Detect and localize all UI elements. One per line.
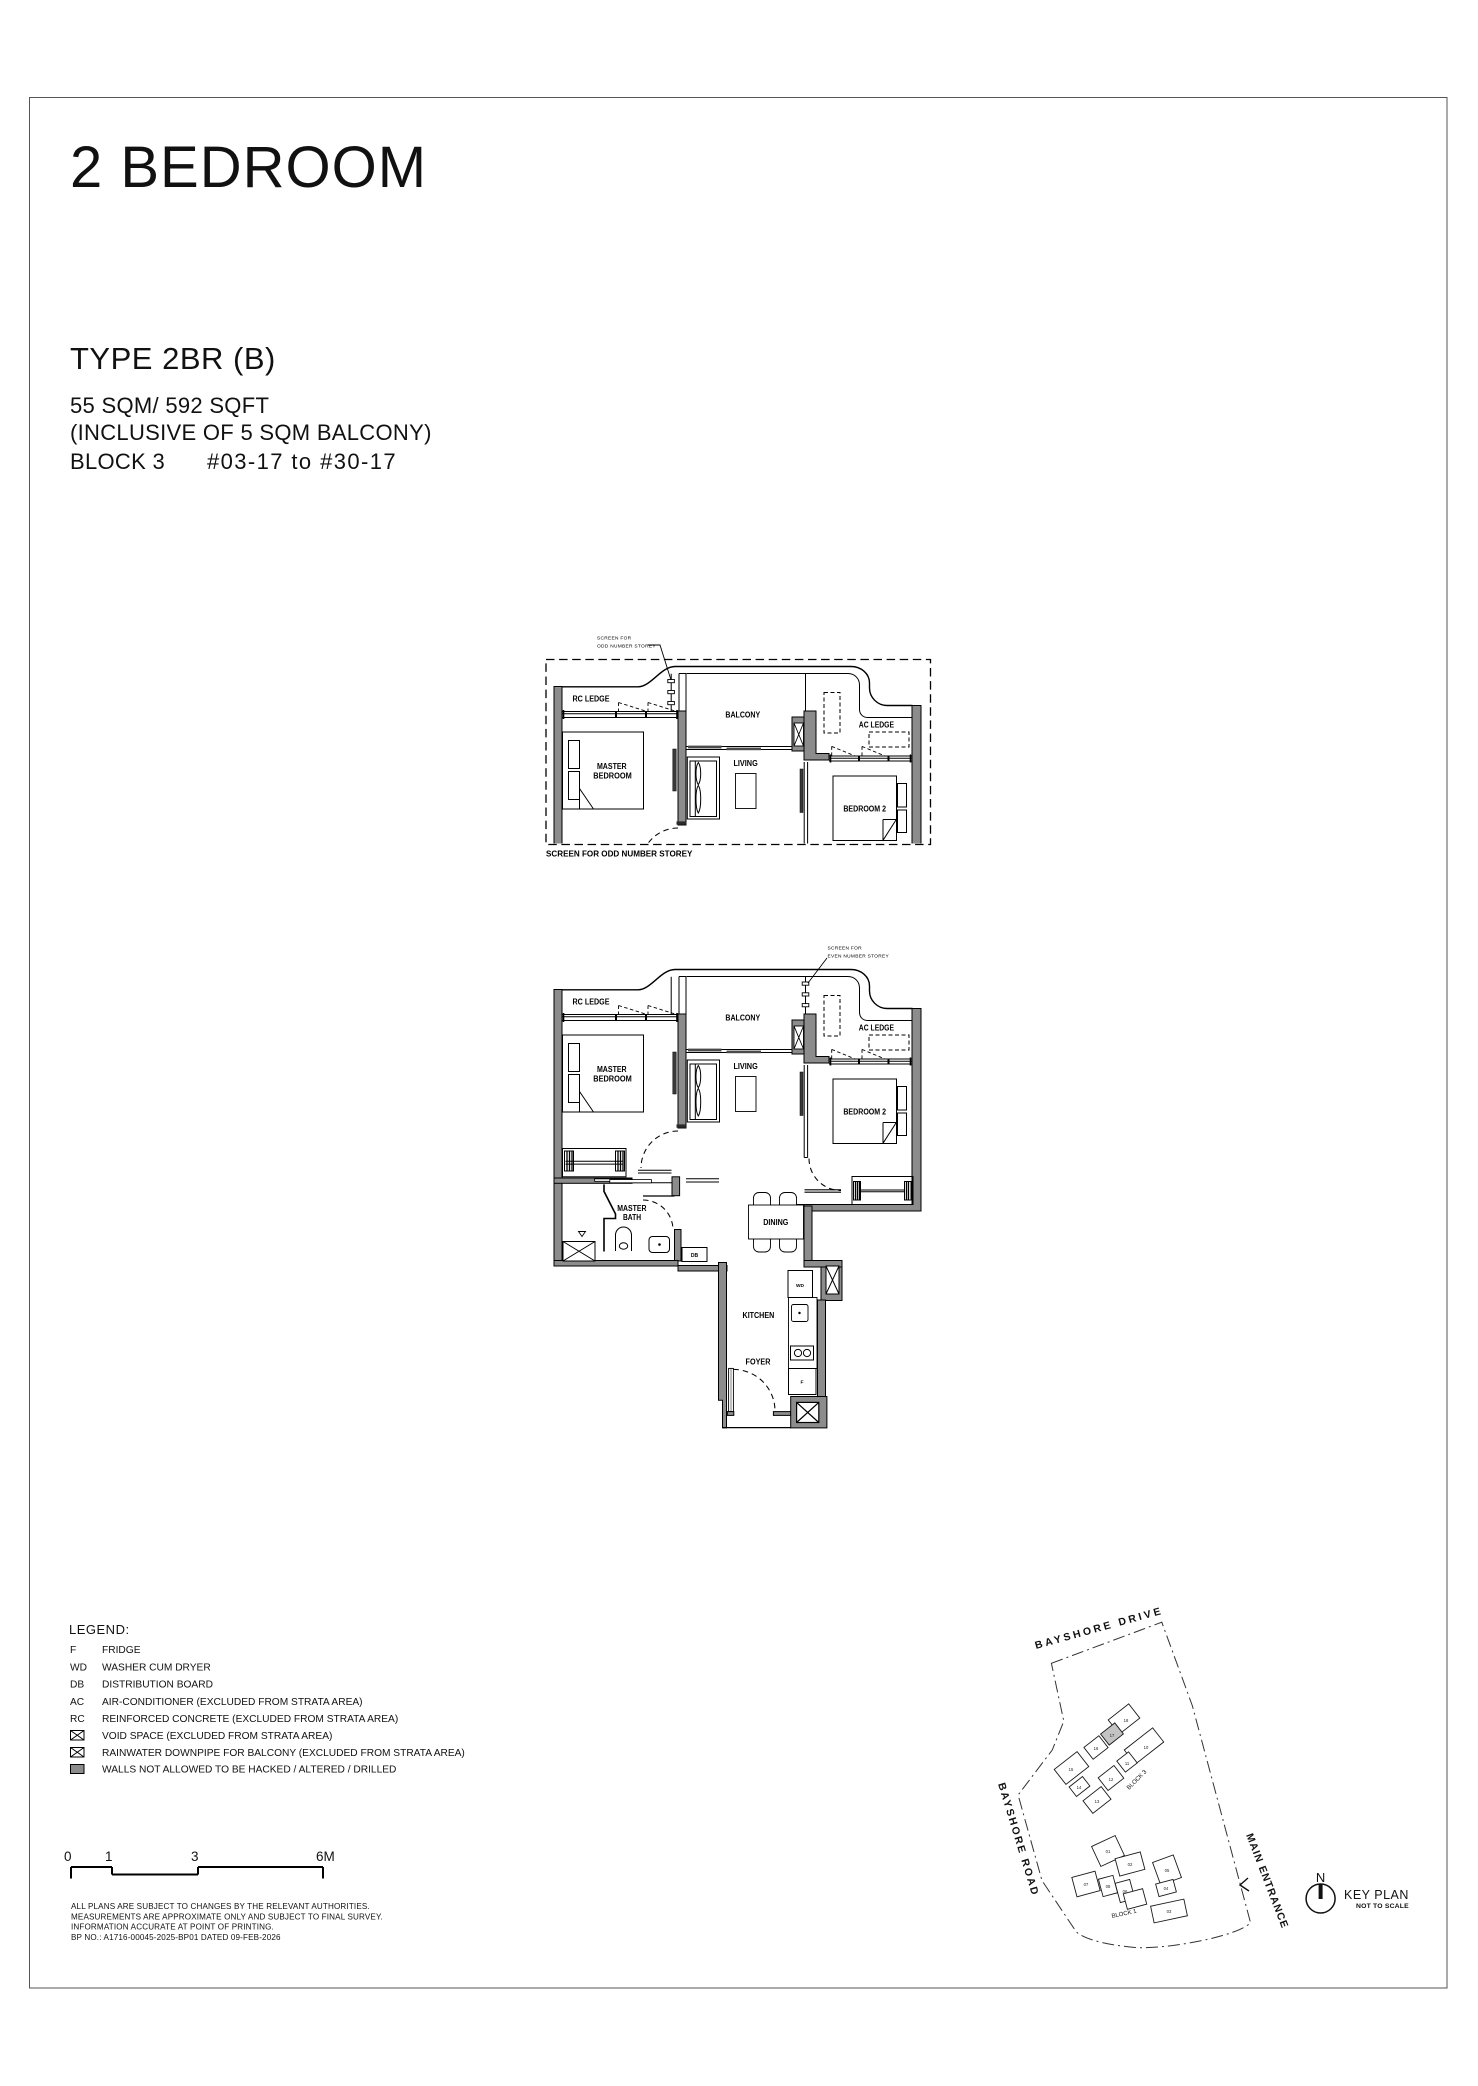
svg-text:ALL PLANS ARE SUBJECT TO CHANG: ALL PLANS ARE SUBJECT TO CHANGES BY THE … <box>71 1902 370 1911</box>
svg-text:SCREEN FOR: SCREEN FOR <box>597 636 632 642</box>
svg-text:AIR-CONDITIONER (EXCLUDED FROM: AIR-CONDITIONER (EXCLUDED FROM STRATA AR… <box>102 1697 363 1708</box>
svg-text:BLOCK 3: BLOCK 3 <box>1126 1769 1149 1792</box>
svg-text:17: 17 <box>1110 1733 1115 1738</box>
svg-text:SCREEN FOR: SCREEN FOR <box>828 946 863 952</box>
svg-text:04: 04 <box>1164 1886 1169 1891</box>
svg-text:10: 10 <box>1144 1745 1149 1750</box>
svg-text:18: 18 <box>1124 1718 1129 1723</box>
svg-text:WALLS NOT ALLOWED TO BE HACKED: WALLS NOT ALLOWED TO BE HACKED / ALTERED… <box>102 1765 396 1776</box>
svg-text:KEY PLAN: KEY PLAN <box>1344 1888 1409 1902</box>
svg-text:6M: 6M <box>316 1849 335 1864</box>
svg-text:BAYSHORE ROAD: BAYSHORE ROAD <box>995 1781 1041 1898</box>
svg-text:WASHER CUM DRYER: WASHER CUM DRYER <box>102 1663 211 1674</box>
svg-text:RAINWATER DOWNPIPE FOR BALCONY: RAINWATER DOWNPIPE FOR BALCONY (EXCLUDED… <box>102 1748 465 1759</box>
svg-text:EVEN NUMBER STOREY: EVEN NUMBER STOREY <box>828 954 890 960</box>
svg-text:11: 11 <box>1125 1761 1130 1766</box>
svg-text:2 BEDROOM: 2 BEDROOM <box>70 135 427 200</box>
svg-text:13: 13 <box>1095 1799 1100 1804</box>
svg-text:INFORMATION ACCURATE AT POINT: INFORMATION ACCURATE AT POINT OF PRINTIN… <box>71 1923 274 1932</box>
svg-text:14: 14 <box>1077 1785 1082 1790</box>
svg-text:LEGEND:: LEGEND: <box>69 1622 130 1637</box>
svg-text:N: N <box>1316 1870 1325 1885</box>
svg-text:REINFORCED CONCRETE (EXCLUDED: REINFORCED CONCRETE (EXCLUDED FROM STRAT… <box>102 1714 398 1725</box>
svg-text:03: 03 <box>1167 1909 1172 1914</box>
svg-text:WD: WD <box>70 1663 87 1674</box>
svg-text:NOT TO SCALE: NOT TO SCALE <box>1356 1903 1409 1910</box>
svg-text:AC: AC <box>70 1697 84 1708</box>
svg-text:#03-17 to #30-17: #03-17 to #30-17 <box>207 449 397 474</box>
svg-text:SCREEN FOR ODD NUMBER STOREY: SCREEN FOR ODD NUMBER STOREY <box>546 850 693 859</box>
svg-text:RC: RC <box>70 1714 85 1725</box>
svg-text:55 SQM/ 592 SQFT: 55 SQM/ 592 SQFT <box>70 393 269 418</box>
svg-text:02: 02 <box>1128 1862 1133 1867</box>
svg-text:15: 15 <box>1069 1767 1074 1772</box>
svg-text:16: 16 <box>1094 1746 1099 1751</box>
svg-text:0: 0 <box>64 1849 72 1864</box>
svg-text:BP NO.: A1716-00045-2025-BP01: BP NO.: A1716-00045-2025-BP01 DATED 09-F… <box>71 1933 281 1942</box>
svg-text:ODD NUMBER STOREY: ODD NUMBER STOREY <box>597 644 656 650</box>
svg-text:06: 06 <box>1123 1889 1128 1894</box>
svg-text:FRIDGE: FRIDGE <box>102 1645 141 1656</box>
svg-text:DB: DB <box>70 1680 84 1691</box>
svg-text:TYPE 2BR (B): TYPE 2BR (B) <box>70 341 276 376</box>
svg-text:DISTRIBUTION BOARD: DISTRIBUTION BOARD <box>102 1680 213 1691</box>
svg-text:BLOCK 3: BLOCK 3 <box>70 449 165 474</box>
svg-text:MAIN ENTRANCE: MAIN ENTRANCE <box>1243 1832 1290 1931</box>
svg-text:01: 01 <box>1106 1849 1111 1854</box>
svg-text:F: F <box>70 1645 76 1656</box>
svg-text:BLOCK 1: BLOCK 1 <box>1111 1909 1138 1920</box>
svg-text:VOID SPACE (EXCLUDED FROM STRA: VOID SPACE (EXCLUDED FROM STRATA AREA) <box>102 1731 332 1742</box>
svg-text:1: 1 <box>105 1849 113 1864</box>
svg-text:MEASUREMENTS ARE APPROXIMATE O: MEASUREMENTS ARE APPROXIMATE ONLY AND SU… <box>71 1912 383 1921</box>
svg-text:08: 08 <box>1106 1884 1111 1889</box>
svg-text:3: 3 <box>191 1849 199 1864</box>
svg-text:05: 05 <box>1165 1868 1170 1873</box>
svg-text:07: 07 <box>1084 1882 1089 1887</box>
svg-text:(INCLUSIVE OF 5 SQM BALCONY): (INCLUSIVE OF 5 SQM BALCONY) <box>70 420 432 445</box>
svg-text:12: 12 <box>1109 1777 1114 1782</box>
